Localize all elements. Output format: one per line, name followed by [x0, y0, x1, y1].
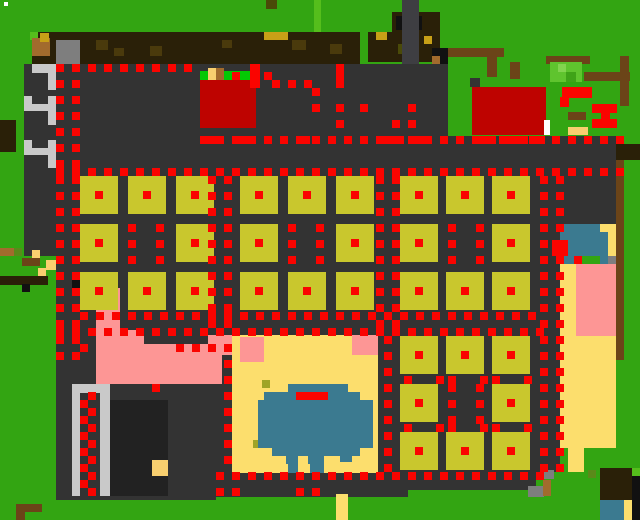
game-world-map-canvas[interactable]	[0, 0, 640, 520]
game-map-viewport	[0, 0, 640, 520]
